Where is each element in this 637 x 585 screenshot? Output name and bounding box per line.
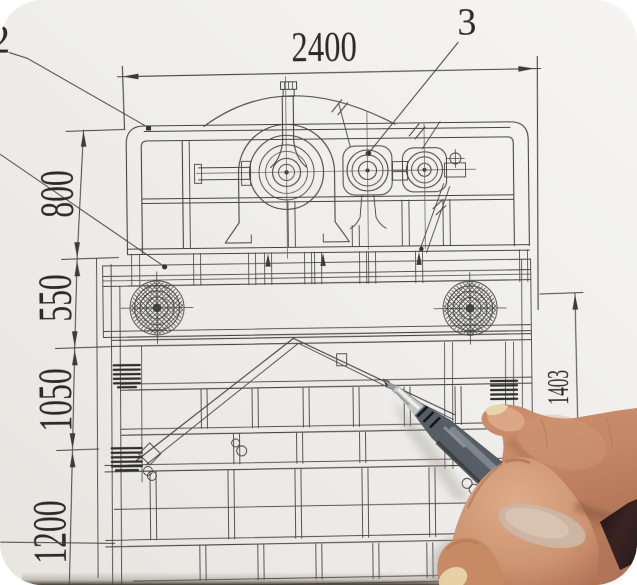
svg-text:800: 800 [30, 170, 84, 218]
svg-text:550: 550 [28, 274, 82, 322]
svg-text:1403: 1403 [542, 370, 576, 405]
svg-text:3: 3 [457, 1, 476, 43]
svg-text:1050: 1050 [28, 368, 82, 432]
svg-text:1200: 1200 [23, 500, 77, 564]
svg-text:2400: 2400 [291, 24, 357, 72]
